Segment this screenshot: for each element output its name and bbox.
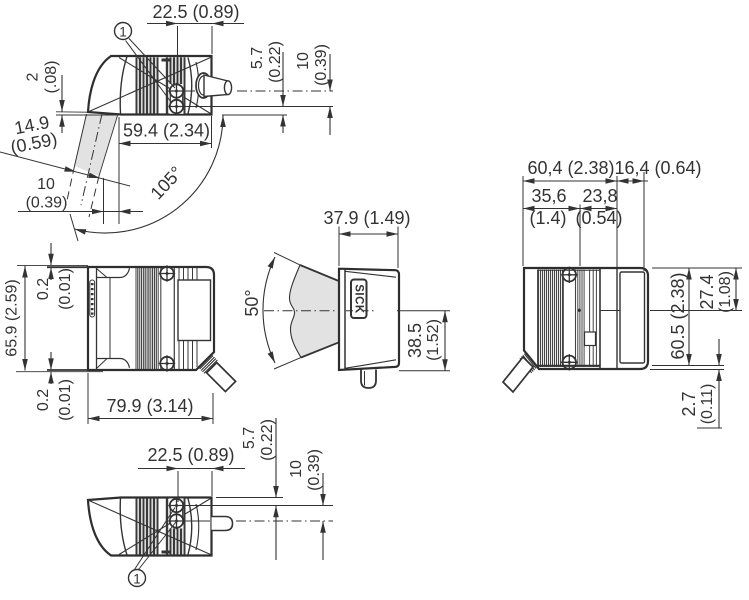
svg-text:23,8: 23,8 (582, 186, 617, 206)
svg-text:60,4 (2.38): 60,4 (2.38) (527, 158, 614, 178)
svg-text:(0.01): (0.01) (57, 379, 74, 421)
svg-text:79.9 (3.14): 79.9 (3.14) (106, 396, 193, 416)
svg-text:65.9 (2.59): 65.9 (2.59) (4, 279, 21, 356)
svg-text:(0.54): (0.54) (575, 208, 622, 228)
svg-text:2: 2 (25, 72, 42, 81)
svg-text:(0.22): (0.22) (259, 419, 276, 461)
svg-text:0.2: 0.2 (35, 389, 52, 411)
svg-text:37.9 (1.49): 37.9 (1.49) (323, 208, 410, 228)
svg-text:5.7: 5.7 (249, 47, 266, 69)
svg-text:1: 1 (119, 25, 127, 40)
svg-text:10: 10 (37, 176, 55, 193)
svg-text:(1.08): (1.08) (717, 271, 734, 313)
svg-text:38.5: 38.5 (405, 323, 425, 358)
svg-text:60.5 (2.38): 60.5 (2.38) (668, 272, 688, 359)
svg-text:(1.52): (1.52) (425, 319, 442, 361)
svg-text:(.08): (.08) (43, 61, 60, 94)
svg-text:(0.39): (0.39) (306, 449, 323, 491)
svg-text:16,4 (0.64): 16,4 (0.64) (614, 158, 701, 178)
svg-text:(0.11): (0.11) (699, 384, 716, 425)
svg-text:SICK: SICK (353, 284, 365, 314)
svg-text:2.7: 2.7 (679, 391, 699, 416)
svg-text:22.5 (0.89): 22.5 (0.89) (147, 445, 234, 465)
svg-text:(0.01): (0.01) (57, 268, 74, 310)
svg-text:(1.4): (1.4) (529, 208, 566, 228)
svg-text:1: 1 (133, 572, 141, 587)
svg-text:5.7: 5.7 (241, 427, 258, 449)
svg-text:59.4 (2.34): 59.4 (2.34) (123, 121, 210, 141)
svg-text:(0.22): (0.22) (267, 41, 284, 83)
svg-text:0.2: 0.2 (35, 278, 52, 300)
svg-text:35,6: 35,6 (531, 186, 566, 206)
svg-text:10: 10 (288, 460, 305, 478)
svg-text:(0.39): (0.39) (26, 195, 68, 212)
svg-text:22.5 (0.89): 22.5 (0.89) (152, 2, 239, 22)
svg-text:27.4: 27.4 (697, 274, 717, 309)
svg-text:50°: 50° (242, 289, 262, 316)
svg-text:10: 10 (295, 52, 312, 70)
